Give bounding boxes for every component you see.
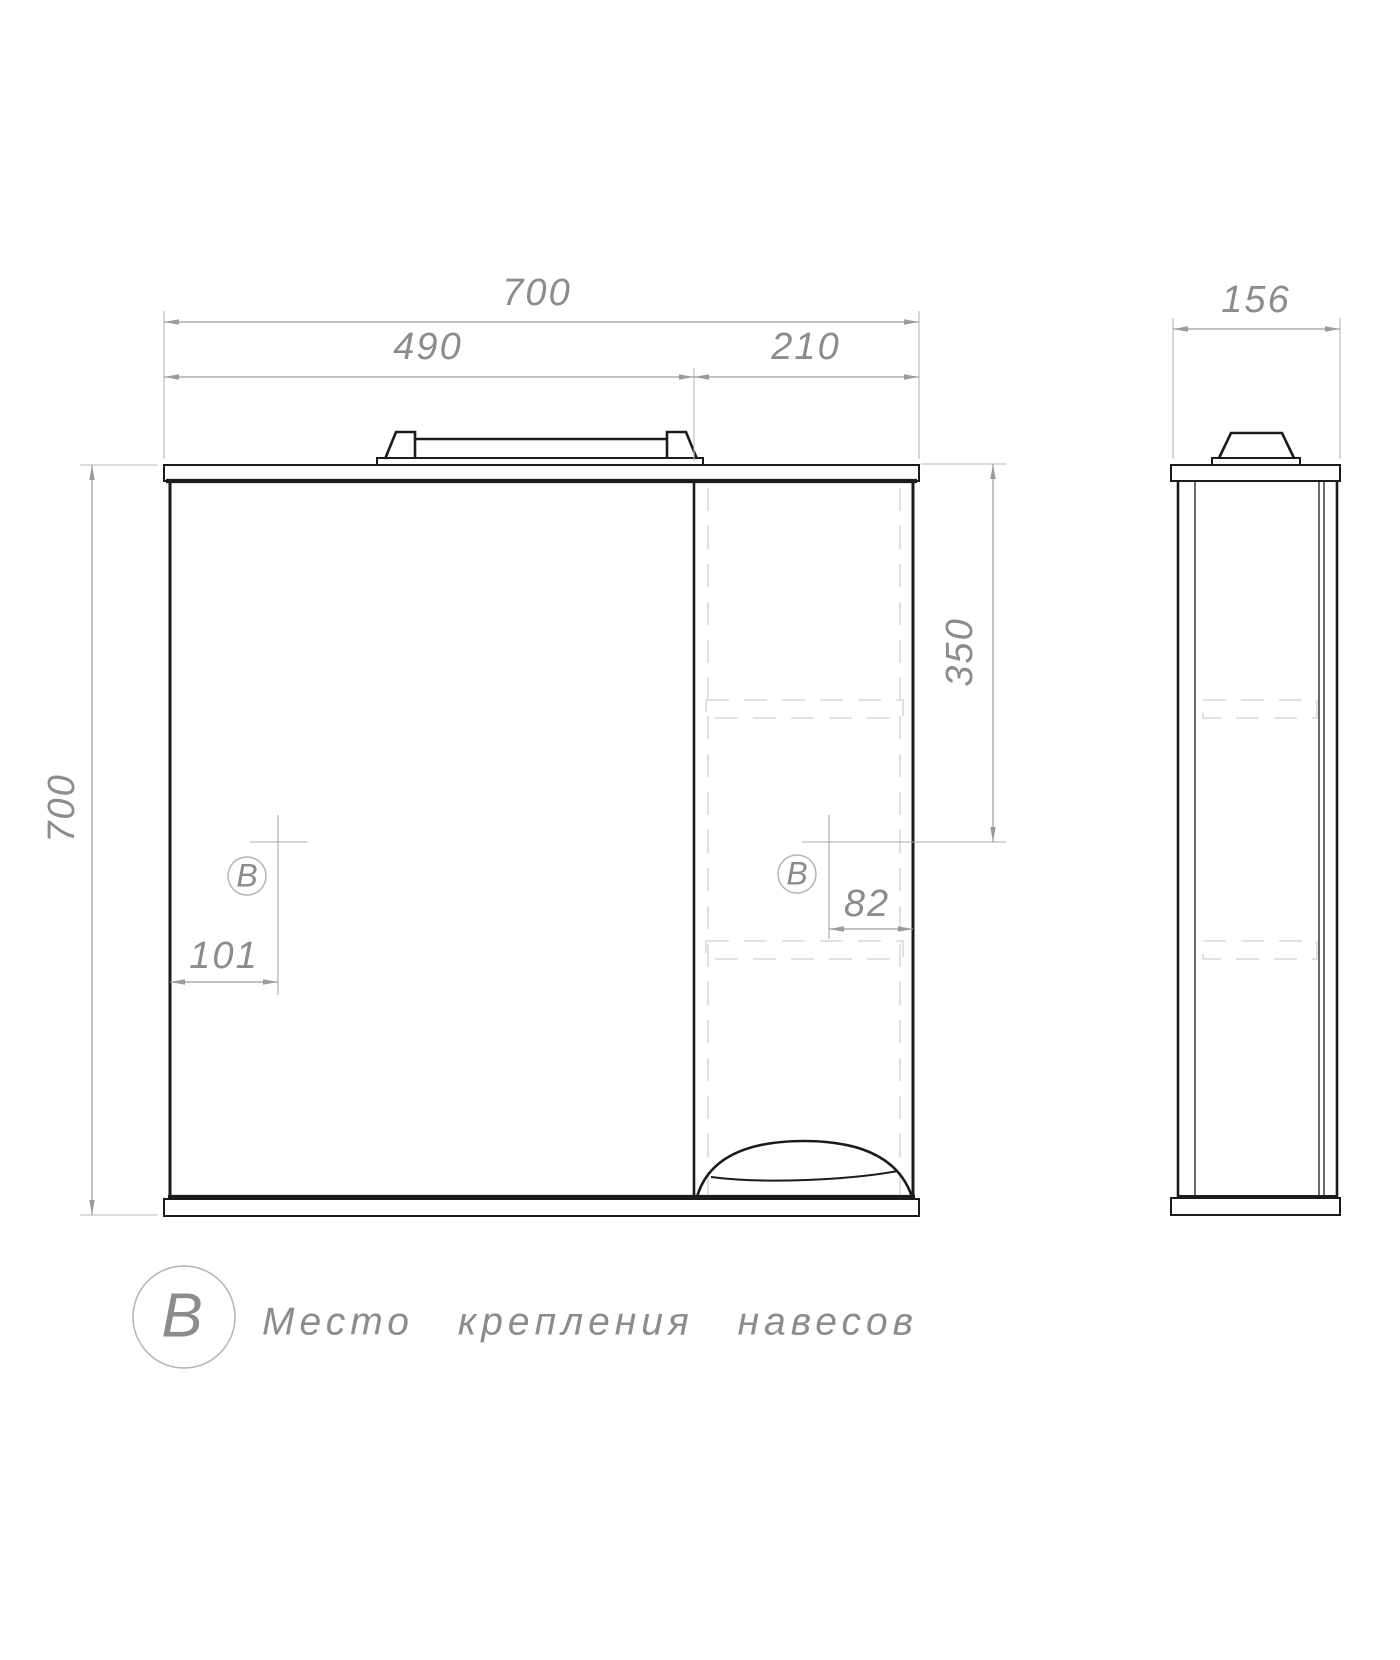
technical-drawing: B B 700 490 210 700 (0, 0, 1400, 1660)
dimension-value: 82 (844, 883, 890, 925)
dimension-value-cabinet: 210 (770, 326, 840, 368)
dimension-value: 156 (1221, 279, 1290, 321)
legend-caption: Место крепления навесов (262, 1300, 918, 1343)
lamp-base-plate (1212, 458, 1300, 465)
drawing-page: B B 700 490 210 700 (0, 0, 1400, 1660)
dimension-value: 101 (189, 935, 258, 977)
dimension-value-mirror: 490 (393, 326, 462, 368)
top-cap (164, 465, 919, 481)
bottom-cap (1171, 1198, 1340, 1215)
dimension-value: 700 (502, 272, 571, 314)
marker-label-left: B (236, 857, 257, 893)
dimension-value: 350 (939, 617, 981, 686)
legend-marker-letter: B (161, 1281, 202, 1350)
bottom-cap (164, 1199, 919, 1216)
dimension-value: 700 (41, 773, 83, 842)
top-cap (1171, 465, 1340, 481)
marker-label-right: B (786, 855, 807, 891)
canvas-background (0, 0, 1400, 1660)
lamp-base-plate (377, 458, 703, 465)
